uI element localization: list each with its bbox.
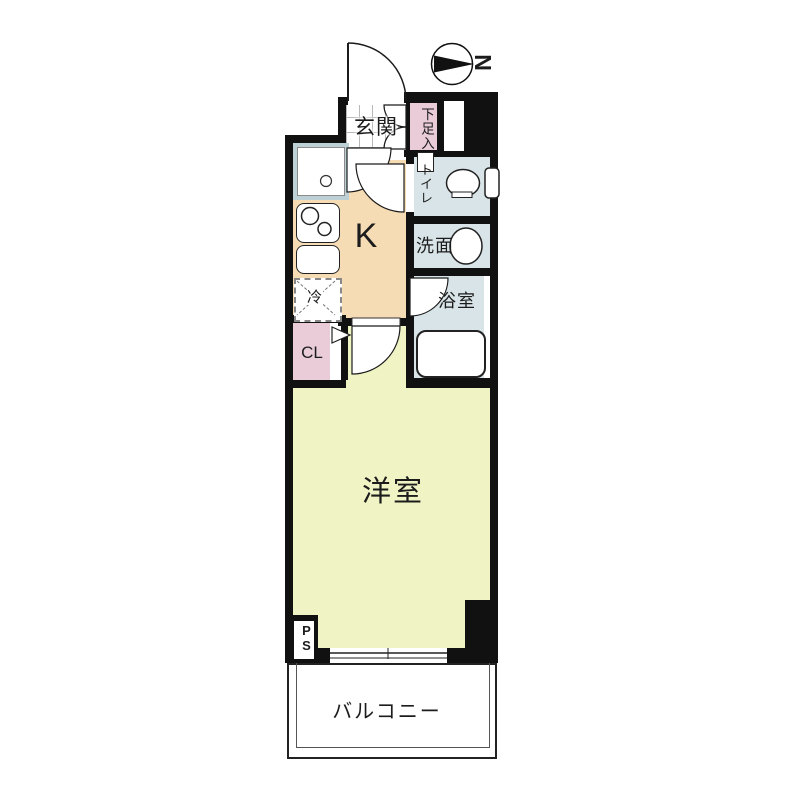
wall xyxy=(285,135,346,143)
room-western-tongue xyxy=(346,326,406,388)
wall xyxy=(404,92,437,103)
north-compass-icon xyxy=(432,44,473,85)
front-door-swing-icon xyxy=(348,43,406,101)
stove-counter xyxy=(296,203,340,243)
balcony-window xyxy=(330,648,447,663)
floor-plan: 玄関 下足入 トイレ 洗面 浴室 K 冷 CL 洋室 バルコニー PS N xyxy=(0,0,800,800)
wall xyxy=(490,92,498,663)
duct-box xyxy=(444,101,464,151)
wall xyxy=(400,318,406,326)
washing-machine-pan xyxy=(293,143,349,200)
wall xyxy=(406,103,410,157)
label-western-room: 洋室 xyxy=(343,478,443,507)
label-pipe-space: PS xyxy=(295,623,313,653)
north-compass-arrow-icon xyxy=(434,56,474,73)
wall xyxy=(285,380,346,388)
label-kitchen: K xyxy=(346,219,386,253)
bathtub xyxy=(416,330,486,378)
wall xyxy=(414,268,490,276)
room-western xyxy=(293,388,490,648)
label-bathroom: 浴室 xyxy=(438,292,476,310)
wall xyxy=(406,378,498,388)
wall xyxy=(406,212,414,388)
closet-door-strip xyxy=(330,323,341,380)
label-refrigerator: 冷 xyxy=(306,290,323,305)
label-balcony: バルコニー xyxy=(287,702,487,722)
wall xyxy=(414,216,490,224)
kitchen-counter xyxy=(296,245,340,274)
wall xyxy=(338,97,348,105)
wall xyxy=(341,323,348,380)
label-entrance: 玄関 xyxy=(346,117,406,138)
label-washroom: 洗面 xyxy=(416,237,454,255)
label-toilet: トイレ xyxy=(414,163,432,205)
label-closet: CL xyxy=(295,344,329,361)
label-shoe-storage: 下足入 xyxy=(415,107,433,151)
wall xyxy=(447,648,490,663)
door-threshold xyxy=(352,318,400,326)
wall xyxy=(285,135,293,663)
wall xyxy=(406,150,414,164)
label-compass-north: N xyxy=(471,54,494,71)
